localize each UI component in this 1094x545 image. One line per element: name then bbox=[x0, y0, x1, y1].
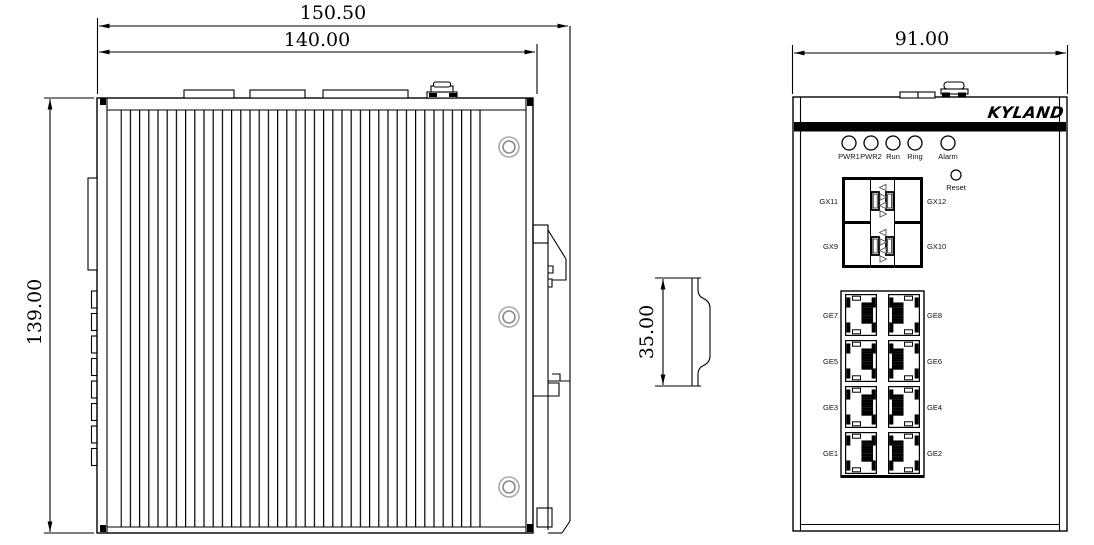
heatsink-fins bbox=[121, 110, 487, 527]
top-connector-front bbox=[941, 82, 968, 97]
alarm-label: Alarm bbox=[935, 152, 961, 161]
sfp-led-indicators bbox=[872, 192, 894, 255]
dim-height-text: 139.00 bbox=[26, 252, 44, 372]
ge3-label: GE3 bbox=[803, 403, 838, 412]
dimension-lines-front bbox=[793, 45, 1068, 94]
panel-black-bar bbox=[794, 122, 1066, 132]
status-leds bbox=[842, 136, 955, 150]
drawing-linework bbox=[0, 0, 1094, 545]
dim-din-height-text: 35.00 bbox=[638, 272, 656, 392]
ge5-label: GE5 bbox=[803, 357, 838, 366]
dimensional-drawing: 150.50 140.00 139.00 35.00 91.00 KYLAND … bbox=[0, 0, 1094, 545]
dim-overall-width-text: 150.50 bbox=[273, 4, 393, 22]
terminal-contacts bbox=[92, 291, 98, 466]
gx9-label: GX9 bbox=[805, 242, 838, 251]
ge8-label: GE8 bbox=[927, 311, 962, 320]
reset-button bbox=[951, 170, 961, 180]
dim-body-width-text: 140.00 bbox=[257, 31, 377, 49]
reset-label: Reset bbox=[941, 183, 971, 192]
mounting-screws bbox=[499, 137, 519, 497]
ge6-port bbox=[889, 341, 920, 382]
kyland-logo: KYLAND bbox=[985, 104, 1066, 122]
ge2-port bbox=[889, 433, 920, 474]
dim-front-width-text: 91.00 bbox=[862, 30, 982, 48]
rj45-port-block bbox=[841, 291, 924, 477]
din-clip bbox=[533, 26, 570, 533]
alarm-led bbox=[941, 136, 955, 150]
gx10-label: GX10 bbox=[927, 242, 960, 251]
sfp-port-block bbox=[843, 179, 922, 267]
ge1-label: GE1 bbox=[803, 449, 838, 458]
ge3-port bbox=[846, 387, 877, 428]
pwr1-led bbox=[842, 136, 856, 150]
top-connector-side bbox=[427, 82, 457, 98]
ge1-port bbox=[846, 433, 877, 474]
ge5-port bbox=[846, 341, 877, 382]
top-edge-tabs bbox=[184, 90, 408, 98]
ge7-label: GE7 bbox=[803, 311, 838, 320]
ge4-port bbox=[889, 387, 920, 428]
ring-led bbox=[908, 136, 922, 150]
side-cover-plate bbox=[88, 178, 97, 270]
gx11-label: GX11 bbox=[805, 197, 838, 206]
pwr2-led bbox=[864, 136, 878, 150]
ge7-port bbox=[846, 295, 877, 336]
sfp-arrow-icons bbox=[880, 184, 887, 262]
ge2-label: GE2 bbox=[927, 449, 962, 458]
ring-label: Ring bbox=[902, 152, 928, 161]
run-led bbox=[886, 136, 900, 150]
ge6-label: GE6 bbox=[927, 357, 962, 366]
gx12-label: GX12 bbox=[927, 197, 960, 206]
ge4-label: GE4 bbox=[927, 403, 962, 412]
side-view bbox=[44, 18, 570, 533]
ge8-port bbox=[889, 295, 920, 336]
din-rail-profile bbox=[655, 278, 710, 386]
front-top-tabs bbox=[900, 92, 935, 98]
